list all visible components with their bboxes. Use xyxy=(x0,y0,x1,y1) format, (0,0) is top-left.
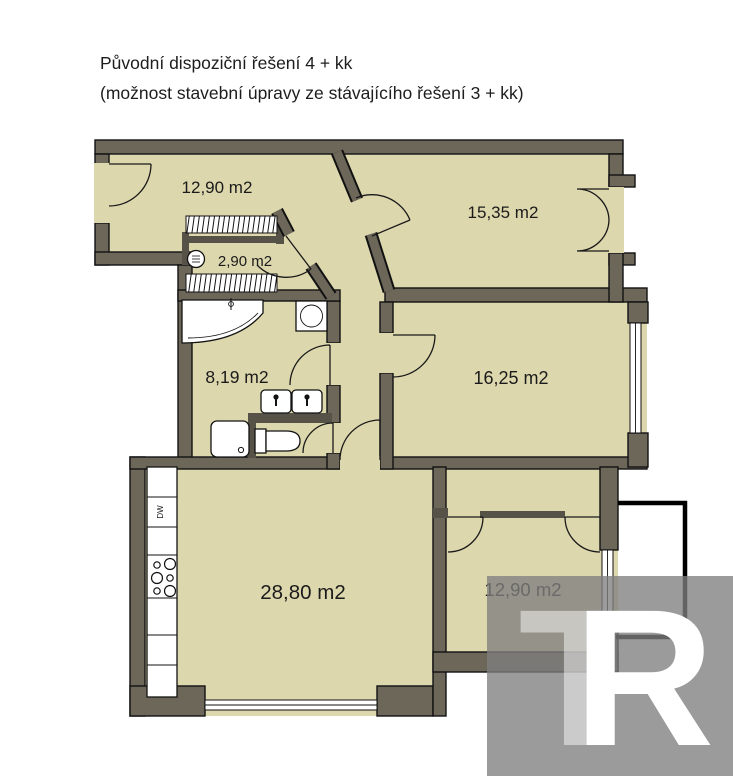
title-line-2: (možnost stavební úpravy ze stávajícího … xyxy=(100,83,524,103)
floorplan-drawing: Původní dispoziční řešení 4 + kk (možnos… xyxy=(0,0,733,776)
plan-title: Původní dispoziční řešení 4 + kk (možnos… xyxy=(100,53,524,103)
label-closet: 2,90 m2 xyxy=(218,253,272,270)
watermark-letter-r: R xyxy=(574,569,715,776)
kitchen-units: DW xyxy=(147,467,177,697)
dishwasher-label: DW xyxy=(156,505,165,519)
label-hallway: 12,90 m2 xyxy=(182,178,253,197)
title-line-1: Původní dispoziční řešení 4 + kk xyxy=(100,53,353,73)
label-bedroom-mid: 16,25 m2 xyxy=(473,368,548,388)
watermark-logo: T R xyxy=(487,569,733,776)
floorplan-page: Původní dispoziční řešení 4 + kk (možnos… xyxy=(0,0,733,776)
kitchen-counter xyxy=(147,467,177,697)
label-bathroom: 8,19 m2 xyxy=(205,367,268,387)
label-living-room: 28,80 m2 xyxy=(260,581,345,604)
label-bedroom-tr: 15,35 m2 xyxy=(468,203,539,222)
toilet-bowl xyxy=(266,431,300,451)
toilet-tank xyxy=(255,429,266,453)
closet-washer-icon xyxy=(188,251,205,268)
